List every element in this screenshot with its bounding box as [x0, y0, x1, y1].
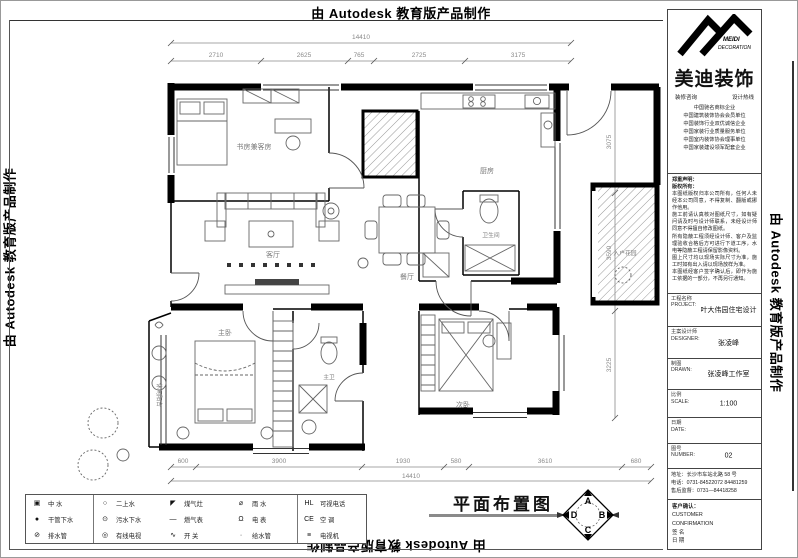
customer-en2: CONFIRMATION	[672, 520, 757, 529]
dim-top-2: 2625	[297, 52, 312, 59]
design-notes-section: 郑重声明： 版权所有： 本图纸版权归本公司所有，任何人未经本公司同意，不得复制、…	[668, 174, 761, 294]
compass-north-label: A	[585, 496, 592, 506]
field-designer-en: DESIGNER:	[671, 336, 700, 342]
dim-bottom-3: 1930	[396, 458, 411, 465]
legend-symbol: —	[166, 516, 180, 523]
field-project-value: 叶大伟园住宅设计	[698, 305, 759, 315]
legend-item: ≡电视机	[298, 527, 366, 543]
legend-label: 电 表	[252, 515, 266, 524]
dim-bottom-4: 580	[451, 458, 462, 465]
legend-symbol: HL	[302, 500, 316, 507]
drawing-title-underline	[429, 514, 557, 517]
notes-line: 所有隐蔽工程须经设计师、客户及监理验收合格后方可进行下道工序，水电等隐蔽工程请保…	[672, 234, 757, 255]
logo-en-line2: DECORATION	[718, 45, 751, 51]
legend-label: 污水下水	[116, 515, 141, 524]
left-frame-line	[9, 20, 10, 549]
credential-line: 中国装饰行业双优诚信企业	[668, 120, 761, 128]
room-label-master-bath: 主卫	[323, 373, 335, 381]
dim-top-4: 2725	[412, 52, 427, 59]
dim-bottom-6: 680	[631, 458, 642, 465]
walls-thin	[149, 87, 527, 451]
room-label-kitchen: 厨房	[480, 166, 494, 175]
field-scale: 比例SCALE: 1:100	[668, 390, 761, 418]
field-date: 日期DATE:	[668, 418, 761, 444]
legend-item: ◤煤气灶	[162, 495, 230, 511]
room-label-dining: 餐厅	[400, 272, 414, 281]
legend-item: —燃气表	[162, 511, 230, 527]
company-address-section: 地址：长沙市车站北路 58 号 电话：0731-84522072 8448125…	[668, 469, 761, 499]
legend-label: 可视电话	[320, 499, 345, 508]
field-number: 图号NUMBER: 02	[668, 444, 761, 470]
logo-en-line1: MEIDI	[723, 37, 740, 43]
autodesk-banner-right: 由 Autodesk 教育版产品制作	[768, 183, 787, 423]
legend-symbol: ⊙	[98, 515, 112, 523]
legend-symbol: ≡	[302, 532, 316, 539]
legend-label: 有线电视	[116, 531, 141, 540]
dim-bottom-5: 3610	[538, 458, 553, 465]
field-scale-en: SCALE:	[671, 399, 689, 405]
legend-item: ▣中 水	[26, 495, 94, 511]
dim-right-3: 3225	[606, 357, 613, 372]
room-label-master: 主卧	[218, 328, 232, 337]
legend-item: CE空 调	[298, 511, 366, 527]
field-project-en: PROJECT:	[671, 302, 696, 308]
room-label-study: 书房兼客房	[237, 142, 272, 151]
legend-label: 开 关	[184, 531, 198, 540]
company-logo-section: MEIDI DECORATION 美迪装饰 装修咨询 设计热线 中国驰名商标企业…	[668, 10, 761, 174]
legend-label: 煤气灶	[184, 499, 203, 508]
notes-line: 施工前请认真核对图纸尺寸，如有疑问请及时与设计师联系，未经设计师同意不得擅自修改…	[672, 212, 757, 233]
dim-top-5: 3175	[511, 52, 526, 59]
legend-symbol: CE	[302, 516, 316, 523]
notes-line: 郑重声明：	[672, 177, 757, 184]
legend-label: 雨 水	[252, 499, 266, 508]
credential-line: 中国家装行业质量服务单位	[668, 128, 761, 136]
legend-label: 中 水	[48, 499, 62, 508]
dim-bottom-overall: 14410	[402, 473, 420, 480]
dim-bottom-1: 600	[178, 458, 189, 465]
room-label-bedroom2: 次卧	[456, 400, 470, 409]
compass-west-label: D	[571, 510, 578, 520]
dim-top-overall: 14410	[352, 34, 370, 41]
customer-confirmation-section: 客户确认： CUSTOMER CONFIRMATION 签 名 日 期	[668, 500, 761, 549]
field-drawn-label: 制图	[671, 361, 681, 367]
address-line: 电话：0731-84522072 84481259	[671, 480, 758, 488]
legend-symbol: ◤	[166, 499, 180, 507]
field-drawn-value: 张凌峰工作室	[698, 369, 759, 379]
legend-symbol: ∿	[166, 531, 180, 539]
legend-label: 燃气表	[184, 515, 203, 524]
field-designer-value: 张凌峰	[698, 338, 759, 348]
legend-item: ·给水管	[230, 527, 298, 543]
legend-item: ∿开 关	[162, 527, 230, 543]
customer-title: 客户确认：	[672, 503, 757, 512]
legend-symbol: ·	[234, 532, 248, 539]
customer-en1: CUSTOMER	[672, 511, 757, 520]
legend-symbol: ●	[30, 516, 44, 523]
dim-top-1: 2710	[209, 52, 224, 59]
compass-east-label: B	[599, 510, 606, 520]
top-rule	[9, 20, 663, 21]
customer-date-label: 日 期	[672, 537, 757, 546]
legend-symbol: ▣	[30, 499, 44, 507]
field-project: 工程名称PROJECT: 叶大伟园住宅设计	[668, 294, 761, 328]
credential-line: 中国驰名商标企业	[668, 104, 761, 112]
bottom-frame-line	[9, 549, 663, 550]
credential-line: 中国建筑装饰协会会员单位	[668, 112, 761, 120]
logo-tagline-left: 装修咨询	[675, 93, 697, 101]
cad-floor-plan-page: { "banner_text": "由 Autodesk 教育版产品制作", "…	[0, 0, 798, 558]
legend-label: 二上水	[116, 499, 135, 508]
room-label-living: 客厅	[266, 250, 280, 259]
credential-line: 中国室内装饰协会理事单位	[668, 136, 761, 144]
legend-symbol: ◎	[98, 531, 112, 539]
legend-label: 干管下水	[48, 515, 73, 524]
legend-item: ◎有线电视	[94, 527, 162, 543]
field-drawn: 制图DRAWN: 张凌峰工作室	[668, 359, 761, 391]
legend-label: 电视机	[320, 531, 339, 540]
dim-bottom-2: 3900	[272, 458, 287, 465]
right-edge-line	[792, 61, 794, 491]
company-credentials: 中国驰名商标企业 中国建筑装饰协会会员单位 中国装饰行业双优诚信企业 中国家装行…	[668, 104, 761, 152]
room-label-entry-garden: 入户花园	[613, 249, 636, 257]
legend-item: Ω电 表	[230, 511, 298, 527]
notes-line: 本图纸经客户签字确认后，即作为施工依据的一部分，不再另行通知。	[672, 269, 757, 283]
compass-south-label: C	[585, 525, 592, 535]
legend-item: HL可视电话	[298, 495, 366, 511]
notes-line: 版权所有：	[672, 184, 757, 191]
legend-label: 给水管	[252, 531, 271, 540]
field-date-en: DATE:	[671, 427, 686, 433]
field-scale-label: 比例	[671, 392, 681, 398]
field-date-label: 日期	[671, 420, 681, 426]
customer-sign-label: 签 名	[672, 529, 757, 538]
floor-plan-drawing: 14410 2710 2625 765 2725 3175 3075 3590 …	[11, 23, 661, 488]
legend-symbol: ⌀	[234, 499, 248, 507]
drawing-title: 平面布置图	[453, 490, 553, 515]
legend-item: ●干管下水	[26, 511, 94, 527]
dim-top-3: 765	[354, 52, 365, 59]
legend-item: ○二上水	[94, 495, 162, 511]
credential-line: 中国家装建设领军配套企业	[668, 144, 761, 152]
meidi-roof-logo-icon: MEIDI DECORATION	[676, 14, 754, 58]
room-label-balcony: 休闲阳台	[155, 383, 163, 407]
room-labels: 书房兼客房 客厅 餐厅 厨房 卫生间 主卧 主卫 次卧 休闲阳台 入户花园	[155, 142, 637, 409]
dimension-lines-bottom: 600 3900 1930 580 3610 680 14410	[168, 458, 654, 484]
field-number-value: 02	[698, 453, 759, 460]
notes-line: 本图纸版权归本公司所有，任何人未经本公司同意，不得复制、翻版或挪作他用。	[672, 191, 757, 212]
legend-item: ⌀雨 水	[230, 495, 298, 511]
room-label-bath: 卫生间	[482, 231, 500, 239]
legend-label: 空 调	[320, 515, 334, 524]
legend-item: ⊙污水下水	[94, 511, 162, 527]
field-project-label: 工程名称	[671, 296, 692, 302]
dimension-lines-top: 14410 2710 2625 765 2725 3175	[168, 34, 574, 64]
field-scale-value: 1:100	[698, 400, 759, 407]
legend-symbol: Ω	[234, 516, 248, 523]
orientation-compass: A B C D	[557, 484, 619, 546]
address-line: 售后监督：0731—84418258	[671, 488, 758, 496]
legend-item: ⊘排水管	[26, 527, 94, 543]
notes-line: 图上尺寸均以现场实际尺寸为准，施工时如有出入请以现场放样为准。	[672, 255, 757, 269]
field-number-label: 图号	[671, 446, 681, 452]
legend-symbol: ○	[98, 500, 112, 507]
legend-symbol: ⊘	[30, 531, 44, 539]
title-block: MEIDI DECORATION 美迪装饰 装修咨询 设计热线 中国驰名商标企业…	[667, 9, 762, 550]
field-designer-label: 主案设计师	[671, 329, 697, 335]
field-number-en: NUMBER:	[671, 452, 695, 458]
logo-tagline-right: 设计热线	[732, 93, 754, 101]
field-designer: 主案设计师DESIGNER: 张凌峰	[668, 327, 761, 359]
field-drawn-en: DRAWN:	[671, 367, 692, 373]
logo-chinese-name: 美迪装饰	[668, 64, 761, 91]
legend-table: ▣中 水 ○二上水 ◤煤气灶 ⌀雨 水 HL可视电话 ●干管下水 ⊙污水下水 —…	[25, 494, 367, 544]
dim-right-1: 3075	[606, 134, 613, 149]
legend-label: 排水管	[48, 531, 67, 540]
